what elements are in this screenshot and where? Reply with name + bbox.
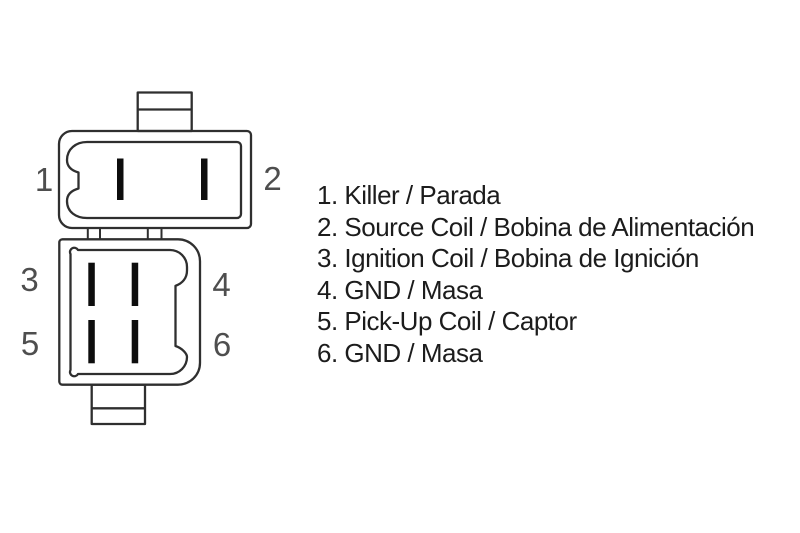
lower-connector-bottom-tab: [92, 385, 145, 424]
lower-connector: [59, 239, 200, 424]
lower-connector-pins: [88, 263, 138, 364]
pin-label-1: 1: [35, 161, 53, 198]
pinout-diagram-page: 1 2 3 4 5 6 1. Killer / Parada 2. Source…: [0, 0, 800, 533]
pin-1-blade: [117, 159, 124, 201]
upper-connector: [59, 93, 251, 229]
legend-item-1: 1. Killer / Parada: [317, 180, 754, 212]
upper-connector-pins: [117, 159, 208, 201]
upper-connector-top-tab: [138, 93, 192, 132]
connector-bridge: [88, 228, 162, 240]
pin-label-5: 5: [21, 325, 39, 362]
legend-item-2: 2. Source Coil / Bobina de Alimentación: [317, 212, 754, 244]
legend-item-6: 6. GND / Masa: [317, 338, 754, 370]
legend-item-3: 3. Ignition Coil / Bobina de Ignición: [317, 243, 754, 275]
upper-connector-inner-cavity: [67, 142, 241, 218]
upper-connector-outer-housing: [59, 131, 251, 228]
pin-legend: 1. Killer / Parada 2. Source Coil / Bobi…: [317, 180, 754, 370]
lower-connector-outer-housing: [59, 239, 200, 384]
pin-4-blade: [132, 263, 139, 306]
pin-2-blade: [201, 159, 208, 201]
pin-label-3: 3: [20, 261, 38, 298]
pin-label-6: 6: [213, 326, 231, 363]
legend-item-4: 4. GND / Masa: [317, 275, 754, 307]
pin-label-4: 4: [212, 266, 230, 303]
pin-5-blade: [88, 320, 95, 363]
lower-connector-inner-cavity: [70, 248, 187, 377]
legend-item-5: 5. Pick-Up Coil / Captor: [317, 306, 754, 338]
pin-label-2: 2: [263, 160, 281, 197]
pin-6-blade: [132, 320, 139, 363]
pin-3-blade: [88, 263, 95, 306]
